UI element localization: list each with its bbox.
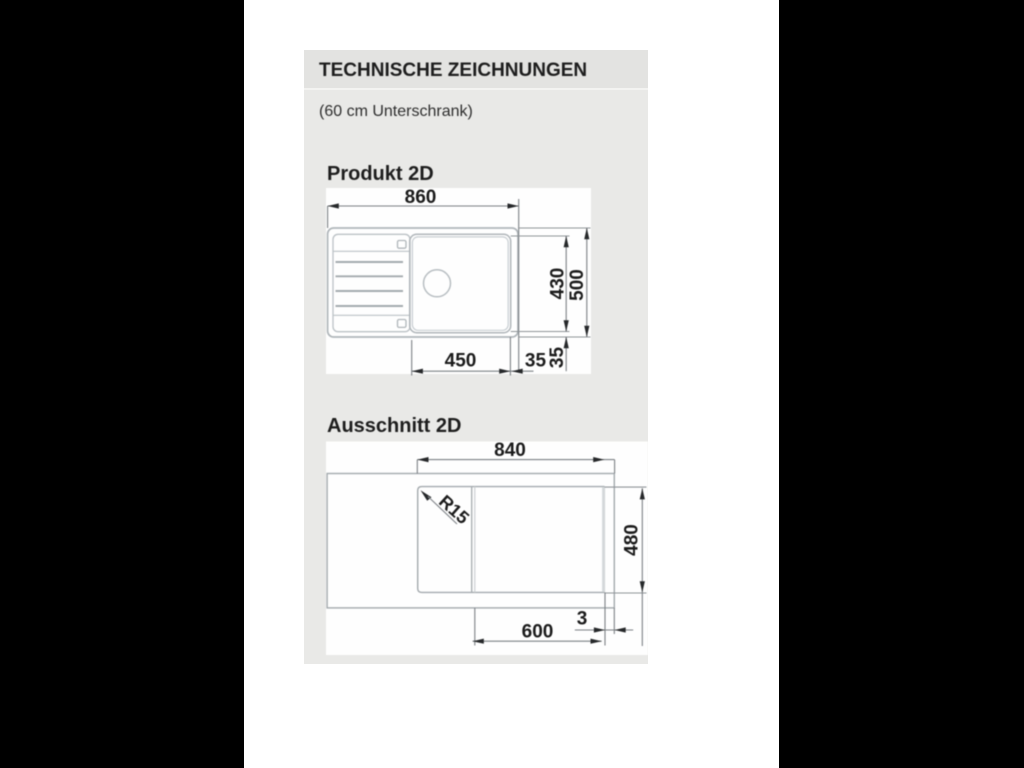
svg-text:450: 450 [445,351,477,372]
svg-text:35: 35 [547,347,568,369]
svg-text:600: 600 [522,622,554,643]
svg-text:480: 480 [622,524,643,556]
svg-text:3: 3 [577,609,588,630]
svg-text:840: 840 [494,440,526,461]
svg-text:35: 35 [525,351,547,372]
svg-text:860: 860 [405,187,437,208]
svg-text:500: 500 [567,269,588,301]
svg-text:430: 430 [548,268,569,300]
